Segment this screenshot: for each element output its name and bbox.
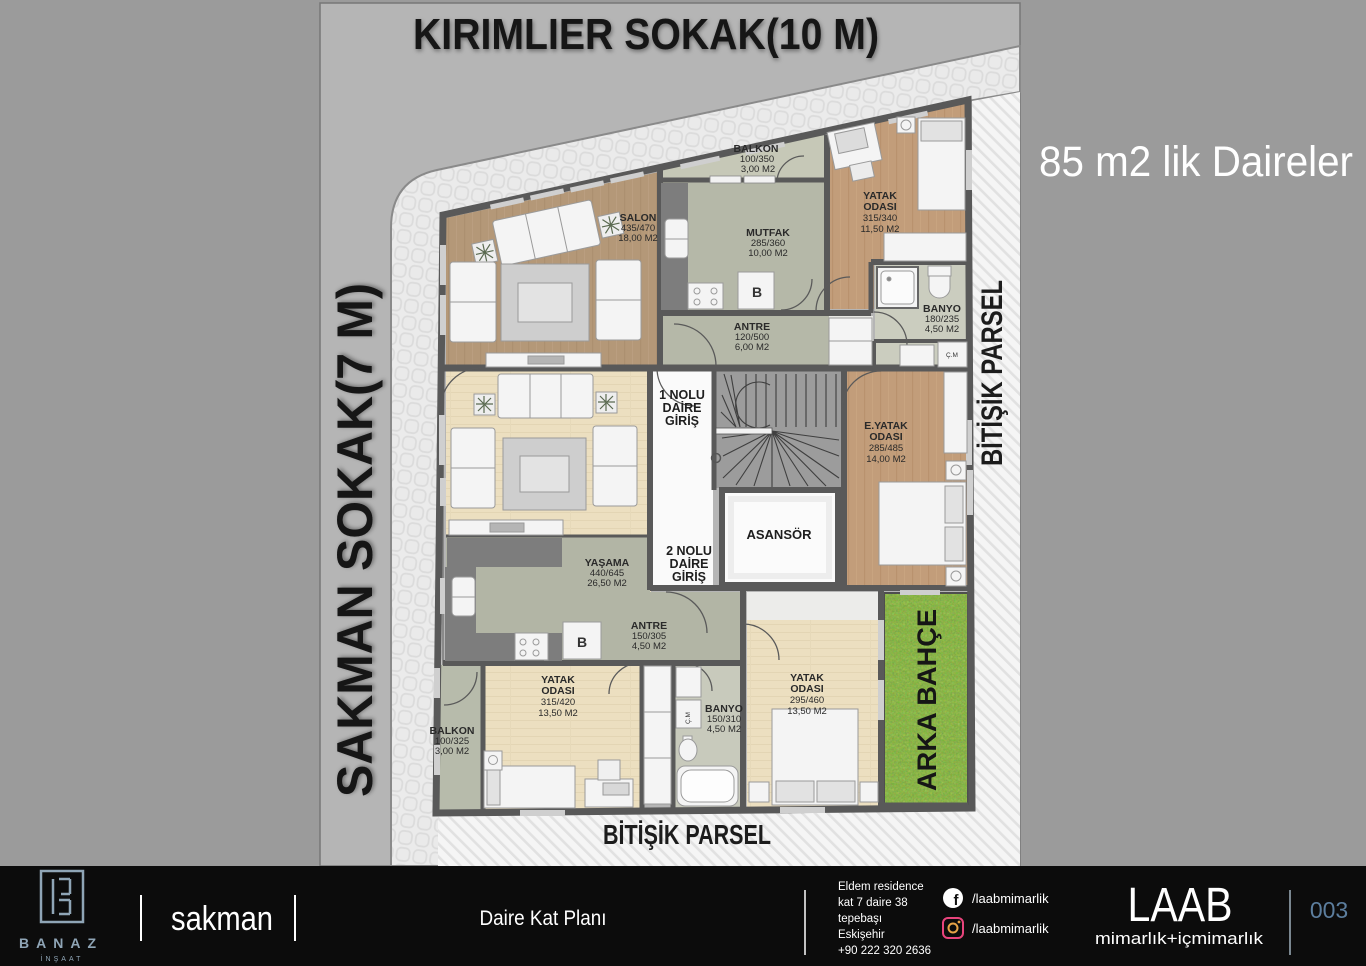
svg-text:BANAZ: BANAZ [19, 935, 103, 951]
svg-text:+90 222 320 2636: +90 222 320 2636 [838, 945, 931, 957]
svg-text:6,00 M2: 6,00 M2 [735, 342, 769, 353]
svg-text:3,00 M2: 3,00 M2 [435, 746, 469, 757]
svg-text:ARKA BAHÇE: ARKA BAHÇE [912, 609, 942, 791]
svg-text:BİTİŞİK PARSEL: BİTİŞİK PARSEL [603, 819, 771, 850]
svg-text:ODASI: ODASI [863, 201, 896, 213]
svg-text:Eskişehir: Eskişehir [838, 929, 885, 941]
svg-text:/laabmimarlik: /laabmimarlik [972, 891, 1049, 906]
svg-text:4,50 M2: 4,50 M2 [632, 641, 666, 652]
svg-text:GİRİŞ: GİRİŞ [665, 413, 699, 428]
svg-text:Ç.M: Ç.M [685, 712, 692, 724]
svg-text:Ç.M: Ç.M [946, 352, 958, 359]
svg-text:10,00 M2: 10,00 M2 [748, 248, 788, 259]
svg-text:285/485: 285/485 [869, 443, 903, 454]
svg-text:KIRIMLIER SOKAK(10 M): KIRIMLIER SOKAK(10 M) [413, 10, 879, 59]
svg-text:13,50 M2: 13,50 M2 [538, 708, 578, 719]
svg-text:kat 7 daire 38: kat 7 daire 38 [838, 897, 908, 909]
svg-text:Daire Kat Planı: Daire Kat Planı [480, 907, 607, 930]
svg-text:LAAB: LAAB [1128, 879, 1233, 932]
svg-text:315/340: 315/340 [863, 213, 897, 224]
svg-text:BİTİŞİK PARSEL: BİTİŞİK PARSEL [976, 280, 1009, 466]
svg-text:4,50 M2: 4,50 M2 [925, 324, 959, 335]
svg-text:003: 003 [1310, 897, 1348, 923]
svg-text:GİRİŞ: GİRİŞ [672, 569, 706, 584]
svg-text:DAİRE: DAİRE [663, 400, 702, 415]
svg-text:ODASI: ODASI [869, 431, 902, 443]
svg-text:18,00 M2: 18,00 M2 [618, 233, 658, 244]
svg-text:26,50 M2: 26,50 M2 [587, 578, 627, 589]
svg-text:B: B [752, 284, 762, 300]
svg-text:11,50 M2: 11,50 M2 [861, 224, 900, 235]
svg-text:14,00 M2: 14,00 M2 [866, 454, 906, 465]
svg-text:İNŞAAT: İNŞAAT [41, 954, 84, 963]
svg-text:2 NOLU: 2 NOLU [666, 544, 712, 558]
svg-text:ODASI: ODASI [790, 683, 823, 695]
svg-text:1 NOLU: 1 NOLU [659, 388, 705, 402]
svg-text:13,50 M2: 13,50 M2 [787, 706, 827, 717]
svg-text:B: B [577, 634, 587, 650]
svg-text:85 m2 lik Daireler: 85 m2 lik Daireler [1039, 138, 1353, 186]
svg-text:sakman: sakman [171, 900, 273, 938]
svg-text:4,50 M2: 4,50 M2 [707, 724, 741, 735]
svg-text:/laabmimarlik: /laabmimarlik [972, 921, 1049, 936]
svg-text:tepebaşı: tepebaşı [838, 913, 882, 925]
svg-text:SAKMAN SOKAK(7 M): SAKMAN SOKAK(7 M) [327, 283, 383, 797]
svg-text:mimarlık+içmimarlık: mimarlık+içmimarlık [1095, 929, 1264, 948]
svg-text:DAİRE: DAİRE [670, 556, 709, 571]
svg-text:ODASI: ODASI [541, 685, 574, 697]
svg-text:3,00 M2: 3,00 M2 [741, 164, 775, 175]
svg-text:295/460: 295/460 [790, 695, 824, 706]
svg-text:Eldem residence: Eldem residence [838, 881, 924, 893]
svg-text:ASANSÖR: ASANSÖR [746, 527, 812, 542]
svg-text:315/420: 315/420 [541, 697, 575, 708]
